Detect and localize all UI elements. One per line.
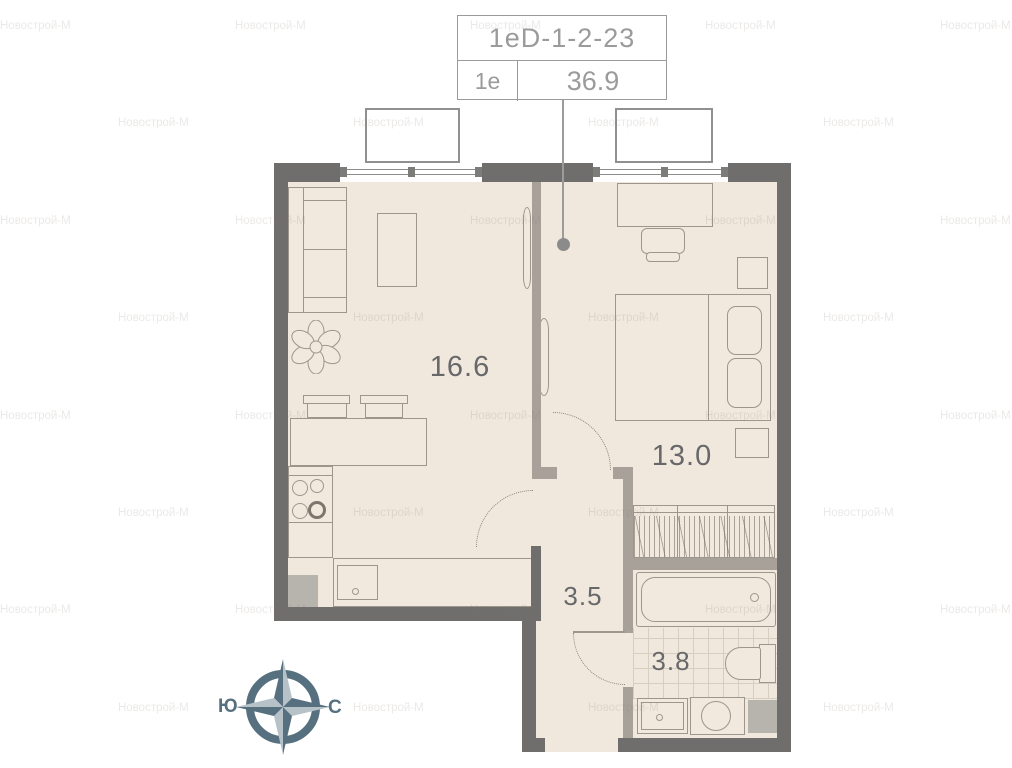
sofa-armrest-line — [303, 200, 347, 201]
wall — [531, 546, 541, 607]
living-room-area-label: 16.6 — [420, 351, 500, 384]
window-mullion — [340, 167, 347, 177]
partition — [532, 182, 541, 467]
bathtub-drain — [750, 593, 759, 602]
wardrobe-hangers-hatch — [634, 516, 774, 557]
tv-living — [523, 207, 531, 289]
nightstand — [737, 257, 768, 289]
wall — [777, 163, 791, 752]
burner — [292, 503, 308, 519]
bathroom-area-label: 3.8 — [641, 646, 701, 677]
watermark-text: Новострой-М — [940, 20, 1011, 32]
watermark-text: Новострой-М — [118, 312, 189, 324]
watermark-text: Новострой-М — [0, 604, 71, 616]
leader-line — [562, 100, 564, 244]
title-block: 1eD-1-2-23 1e 36.9 — [457, 15, 667, 100]
sink-drain — [656, 714, 663, 721]
desk-chair-back — [646, 252, 680, 262]
bathroom-door-leaf — [573, 631, 625, 633]
wall — [274, 163, 288, 621]
watermark-text: Новострой-М — [353, 702, 424, 714]
partition — [623, 687, 633, 738]
watermark-text: Новострой-М — [940, 410, 1011, 422]
window-mullion — [593, 167, 600, 177]
sofa-cushion-line — [303, 249, 347, 250]
partition — [613, 467, 633, 479]
pillow — [727, 358, 762, 408]
dining-table — [290, 418, 427, 466]
window-mullion — [475, 167, 482, 177]
burner-active — [308, 501, 326, 519]
duct-shaft — [748, 700, 777, 733]
watermark-text: Новострой-М — [940, 604, 1011, 616]
wall — [522, 621, 536, 752]
watermark-text: Новострой-М — [823, 117, 894, 129]
watermark-text: Новострой-М — [235, 20, 306, 32]
watermark-text: Новострой-М — [0, 410, 71, 422]
sofa-back-line — [303, 187, 304, 313]
plant — [289, 320, 343, 374]
watermark-text: Новострой-М — [705, 20, 776, 32]
balcony-outline — [365, 108, 460, 163]
sofa-armrest-line — [303, 297, 347, 298]
watermark-text: Новострой-М — [0, 20, 71, 32]
compass-south-label: Ю — [218, 696, 238, 718]
wall — [274, 607, 541, 621]
nightstand — [735, 428, 769, 458]
pillow — [727, 306, 762, 355]
partition — [623, 479, 633, 633]
toilet-bowl — [725, 647, 761, 680]
window-mullion — [661, 167, 668, 177]
watermark-text: Новострой-М — [823, 312, 894, 324]
stool-seat — [365, 403, 403, 418]
floor-plan: 16.6 13.0 3.5 3.8 1eD-1-2-23 1e 36.9 Ю С… — [0, 0, 1012, 768]
total-area: 36.9 — [518, 61, 668, 101]
layout-type: 1e — [458, 61, 518, 101]
wardrobe-rail-line — [633, 512, 775, 513]
partition — [633, 558, 777, 570]
bedroom-area-label: 13.0 — [642, 440, 722, 473]
watermark-text: Новострой-М — [823, 702, 894, 714]
sofa — [288, 187, 347, 313]
bed-head-line — [708, 294, 709, 421]
desk — [617, 183, 713, 227]
window-mullion — [721, 167, 728, 177]
stool-seat — [307, 403, 347, 418]
watermark-text: Новострой-М — [823, 507, 894, 519]
balcony-outline — [615, 108, 713, 163]
compass-north-label: С — [328, 697, 342, 719]
watermark-text: Новострой-М — [118, 507, 189, 519]
vent-shaft — [283, 575, 318, 607]
watermark-text: Новострой-М — [118, 702, 189, 714]
watermark-text: Новострой-М — [0, 215, 71, 227]
desk-chair-seat — [641, 228, 685, 254]
coffee-table — [377, 213, 417, 287]
kitchen-sink — [337, 565, 378, 600]
watermark-text: Новострой-М — [118, 117, 189, 129]
washing-machine-drum — [701, 701, 731, 731]
window-mullion — [408, 167, 415, 177]
unit-code: 1eD-1-2-23 — [458, 16, 666, 61]
toilet-tank — [759, 644, 776, 683]
leader-dot — [557, 238, 570, 251]
wall — [618, 738, 791, 752]
wall — [536, 738, 545, 752]
burner — [292, 480, 308, 496]
hallway-area-label: 3.5 — [553, 581, 613, 612]
watermark-text: Новострой-М — [940, 215, 1011, 227]
burner — [310, 479, 324, 493]
sink-drain — [352, 588, 359, 595]
